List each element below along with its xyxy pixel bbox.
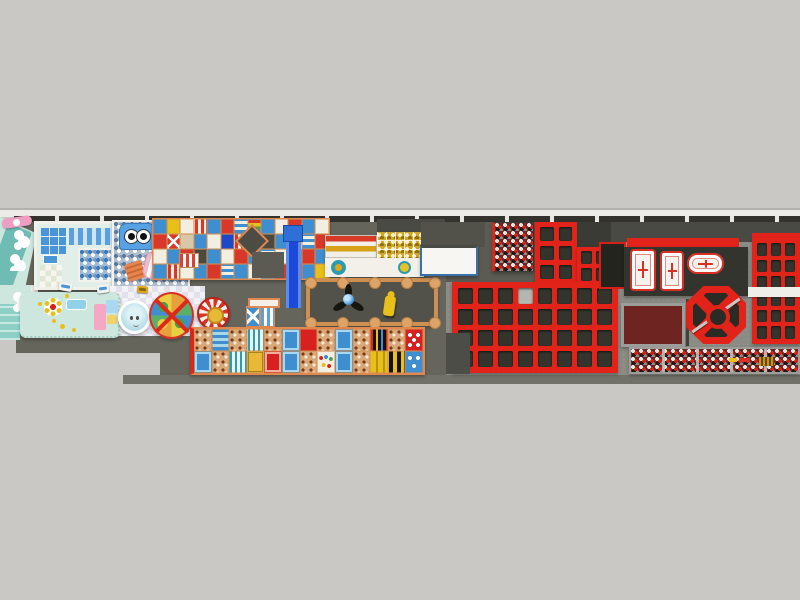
multi-level-play-structure (152, 218, 330, 280)
toddler-stool (52, 319, 56, 323)
trampoline-bed (518, 330, 533, 346)
trampoline-bed (458, 309, 473, 325)
pastel-block-yellow (107, 315, 117, 324)
ball-pool-cell (264, 329, 282, 351)
ride-on-car (97, 284, 110, 294)
airbag-landing-mat (687, 253, 724, 274)
toddler-table (66, 299, 87, 310)
cream-panel (207, 234, 221, 249)
trampoline-bed (498, 330, 513, 346)
slide-entry-platform (283, 225, 303, 242)
blue-dice-panel (405, 351, 423, 373)
blue-panel (234, 264, 248, 279)
carousel-hub (207, 307, 224, 324)
dark-deck (252, 252, 284, 278)
trampoline-bed (557, 309, 572, 325)
blue-panel (302, 219, 316, 234)
ball-pool-cell (353, 351, 371, 373)
red-panel (207, 264, 221, 279)
toddler-soft-play-room (34, 221, 116, 290)
car-windshield (61, 284, 70, 289)
black-yellow-stripe-panel (388, 351, 406, 373)
trampoline-bed (577, 288, 592, 304)
floor-bottom-walkway (123, 375, 800, 384)
trampoline-bed (538, 330, 553, 346)
toddler-stool (65, 294, 69, 298)
red-dice-panel (405, 329, 423, 351)
foam-cube-pit (492, 222, 534, 272)
pastel-block-pink (94, 304, 106, 330)
ball-pool-cell (388, 329, 406, 351)
pool-face-eye (136, 316, 139, 320)
racing-glide-lanes (325, 235, 377, 258)
striped-panel (260, 306, 275, 327)
foam-prop-yellow (729, 358, 737, 362)
spin-zone-frame (306, 278, 438, 326)
blue-panel (261, 219, 275, 234)
cream-panel (315, 219, 329, 234)
yellow-stripe-panel (370, 351, 388, 373)
foam-prop-red (739, 358, 750, 362)
trampoline-bed (557, 351, 572, 367)
red-table (264, 351, 282, 373)
cream-panel (180, 219, 194, 234)
airbag-landing-mat (660, 251, 684, 291)
trampoline-bed (597, 309, 612, 325)
sweeper-fan (336, 286, 362, 314)
trampoline-bed (785, 326, 795, 339)
reception-back-wall (421, 222, 485, 247)
owl-eye (136, 229, 151, 244)
trampoline-bed (785, 243, 795, 256)
trampoline-bed (498, 288, 513, 304)
trampoline-bed (478, 309, 493, 325)
blue-game-panel (282, 329, 300, 351)
trampoline-bed (597, 330, 612, 346)
trampoline-bed (478, 330, 493, 346)
blue-white-stripe-panel (221, 264, 235, 279)
round-face-ball-pool (118, 300, 151, 334)
teal-stripe-panel (229, 351, 247, 373)
wipeout-octagon (686, 286, 746, 344)
trampoline-bed (478, 351, 493, 367)
trampoline-bed (577, 309, 592, 325)
trampoline-bed (771, 310, 781, 323)
rainbow-dot-panel (317, 351, 335, 373)
red-white-stripe-panel (194, 219, 208, 234)
trampoline-bed (540, 227, 554, 241)
blue-grid-panel (212, 329, 230, 351)
track-landing-apron (325, 258, 424, 277)
frame-post (429, 317, 441, 329)
reception-counter (420, 245, 478, 276)
game-panel-structure (190, 327, 425, 375)
trampoline-bed (581, 251, 592, 264)
blue-game-panel (194, 351, 212, 373)
frame-post (401, 277, 413, 289)
trampoline-bed (771, 260, 781, 273)
car-windshield (139, 288, 146, 292)
black-color-bar-panel (370, 329, 388, 351)
flower-table (44, 298, 62, 316)
red-panel (300, 329, 318, 351)
gold-ball-pit (377, 232, 424, 258)
teal-stripe-panel (247, 329, 265, 351)
trampoline-bed (597, 351, 612, 367)
striped-toddler-mats (69, 228, 112, 245)
ball-pool-cell (229, 329, 247, 351)
trampoline-bed (757, 260, 767, 273)
court-side-platform (446, 333, 470, 374)
cream-panel (153, 249, 167, 264)
frame-post (369, 277, 381, 289)
ride-on-car (137, 286, 149, 294)
trampoline-bed (478, 288, 493, 304)
trampoline-bed (557, 288, 572, 304)
trampoline-bed (577, 351, 592, 367)
tan-panel (180, 234, 194, 249)
gold-panel (247, 351, 265, 373)
trampoline-bed (538, 288, 553, 304)
toddler-ball-pit (78, 248, 113, 282)
car-windshield (99, 286, 107, 290)
high-jump-platform (599, 242, 626, 289)
ball-pool-cell (212, 351, 230, 373)
trampoline-bed (518, 351, 533, 367)
main-trampoline-court (452, 282, 618, 373)
blue-panel (207, 219, 221, 234)
trampoline-bed (557, 330, 572, 346)
trampoline-bed (771, 326, 781, 339)
octagon-hub (706, 305, 730, 329)
ball-pool-cell (317, 329, 335, 351)
player-head (387, 291, 395, 299)
foam-flower-cluster (14, 229, 30, 251)
blue-panel (207, 249, 221, 264)
trampoline-bed (518, 309, 533, 325)
playground-floorplan-render (0, 0, 800, 600)
trampoline-bed (559, 227, 573, 241)
ball-pool-cell (353, 329, 371, 351)
trampoline-bed (757, 326, 767, 339)
blue-white-stripe-panel (302, 234, 316, 249)
play-ball (60, 324, 65, 329)
ball-pool-cell (194, 329, 212, 351)
frame-post (429, 277, 441, 289)
target-ring (398, 261, 411, 274)
owl-play-structure (119, 223, 156, 250)
rainbow-ball-pit-net-dome (149, 292, 194, 339)
pastel-block-blue (106, 300, 118, 313)
trampoline-bed (498, 351, 513, 367)
foam-prop-gold (759, 357, 774, 366)
blue-panel (194, 234, 208, 249)
toddler-trampoline-panels (246, 306, 275, 327)
trampoline-bed (577, 330, 592, 346)
cream-panel (221, 249, 235, 264)
mat-cross (689, 255, 722, 272)
trampoline-court-upper (535, 222, 577, 284)
red-x-panel (167, 234, 181, 249)
trampoline-bed (458, 288, 473, 304)
blue-drop-slide (286, 242, 301, 308)
trampoline-bed (757, 243, 767, 256)
court-walkway-band (748, 287, 800, 297)
airbag-banner (627, 238, 739, 247)
play-ball (72, 328, 76, 332)
trampoline-bed (538, 351, 553, 367)
foam-cube-pits (621, 303, 685, 347)
trampoline-bed (540, 246, 554, 260)
propeller-hub (13, 219, 21, 227)
red-panel (221, 219, 235, 234)
yellow-panel (167, 219, 181, 234)
toddler-activity-platform (20, 292, 120, 338)
frame-post (305, 277, 317, 289)
striped-awning (179, 253, 199, 268)
blue-panel (153, 264, 167, 279)
trampoline-bed (498, 309, 513, 325)
mat-cross (662, 253, 682, 289)
trampoline-bed (785, 310, 795, 323)
fan-ball (343, 294, 354, 305)
pool-face-eye (130, 316, 133, 320)
blue-game-panel (282, 351, 300, 373)
foam-pit-row (629, 347, 800, 374)
trampoline-bed (757, 310, 767, 323)
pool-face-mouth (133, 323, 139, 327)
trampoline-bed (518, 288, 533, 304)
trampoline-bed (785, 260, 795, 273)
mat-cross (632, 251, 654, 289)
toddler-blue-blocks (40, 228, 66, 254)
trampoline-bed (540, 265, 554, 279)
toddler-stool (38, 302, 42, 306)
blue-game-panel (335, 351, 353, 373)
red-panel (302, 249, 316, 264)
trampoline-bed (771, 243, 781, 256)
target-ring (331, 260, 346, 275)
soft-play-piece (43, 255, 58, 264)
trampoline-bed (538, 309, 553, 325)
blue-panel (153, 219, 167, 234)
blue-game-panel (335, 329, 353, 351)
player-figure (383, 295, 397, 316)
small-play-unit (248, 298, 280, 308)
trampoline-bed (559, 246, 573, 260)
trampoline-bed (597, 288, 612, 304)
airbag-landing-mat (630, 249, 656, 291)
deep-blue-panel (221, 234, 235, 249)
foam-flower-cluster (10, 253, 26, 271)
trampoline-bed (559, 265, 573, 279)
ball-pool-cell (300, 351, 318, 373)
cross-brace-panel (246, 306, 260, 327)
mini-carousel (197, 297, 230, 330)
trampoline-bed (581, 268, 592, 281)
red-panel (153, 234, 167, 249)
